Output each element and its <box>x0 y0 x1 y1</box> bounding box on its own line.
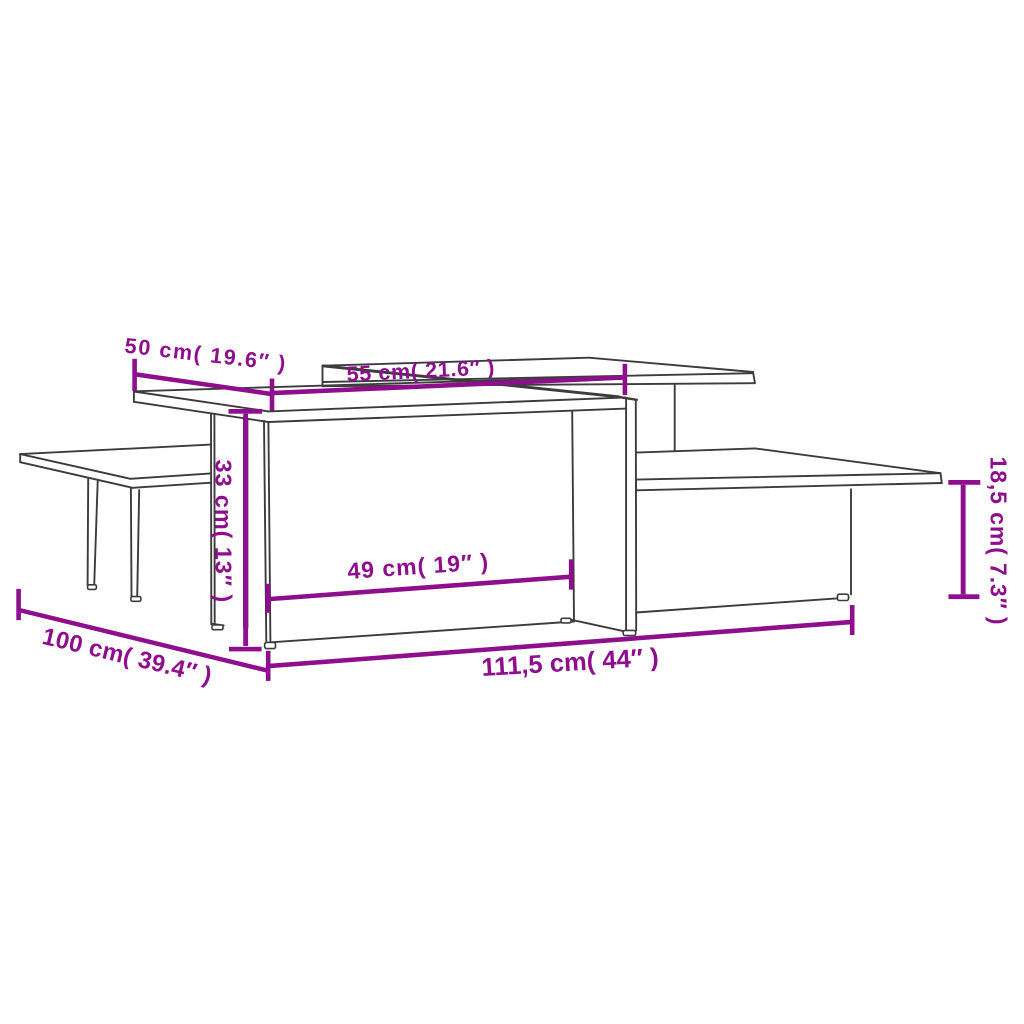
svg-text:33 cm( 13″ ): 33 cm( 13″ ) <box>211 460 237 604</box>
svg-text:18,5 cm( 7.3″ ): 18,5 cm( 7.3″ ) <box>986 457 1012 626</box>
